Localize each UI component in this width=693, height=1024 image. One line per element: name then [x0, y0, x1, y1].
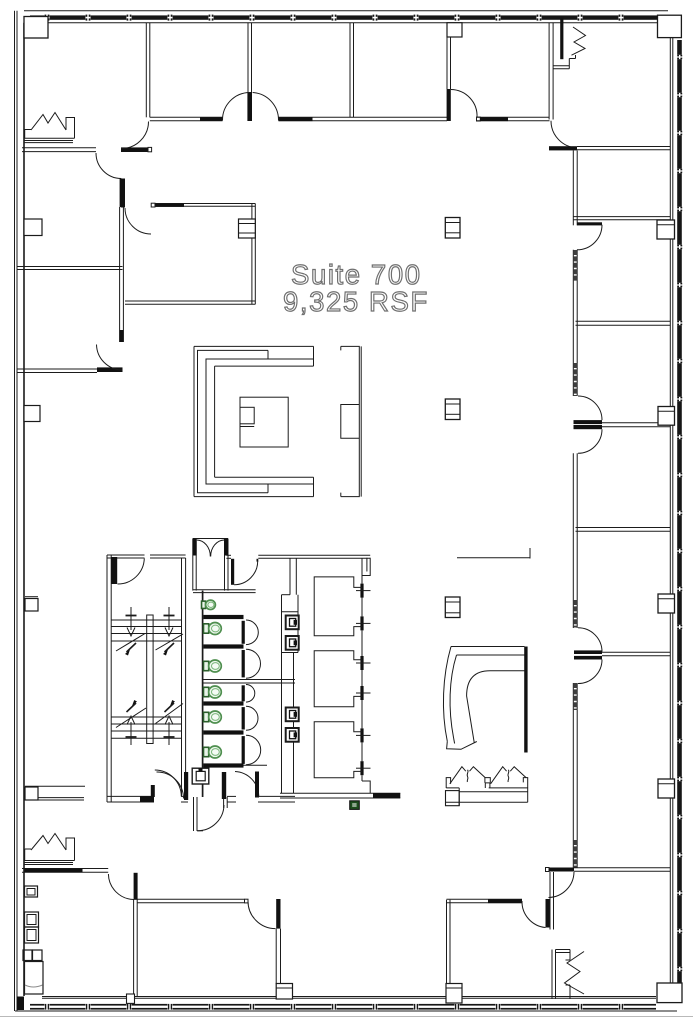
svg-text:9,325 RSF: 9,325 RSF: [283, 286, 429, 317]
